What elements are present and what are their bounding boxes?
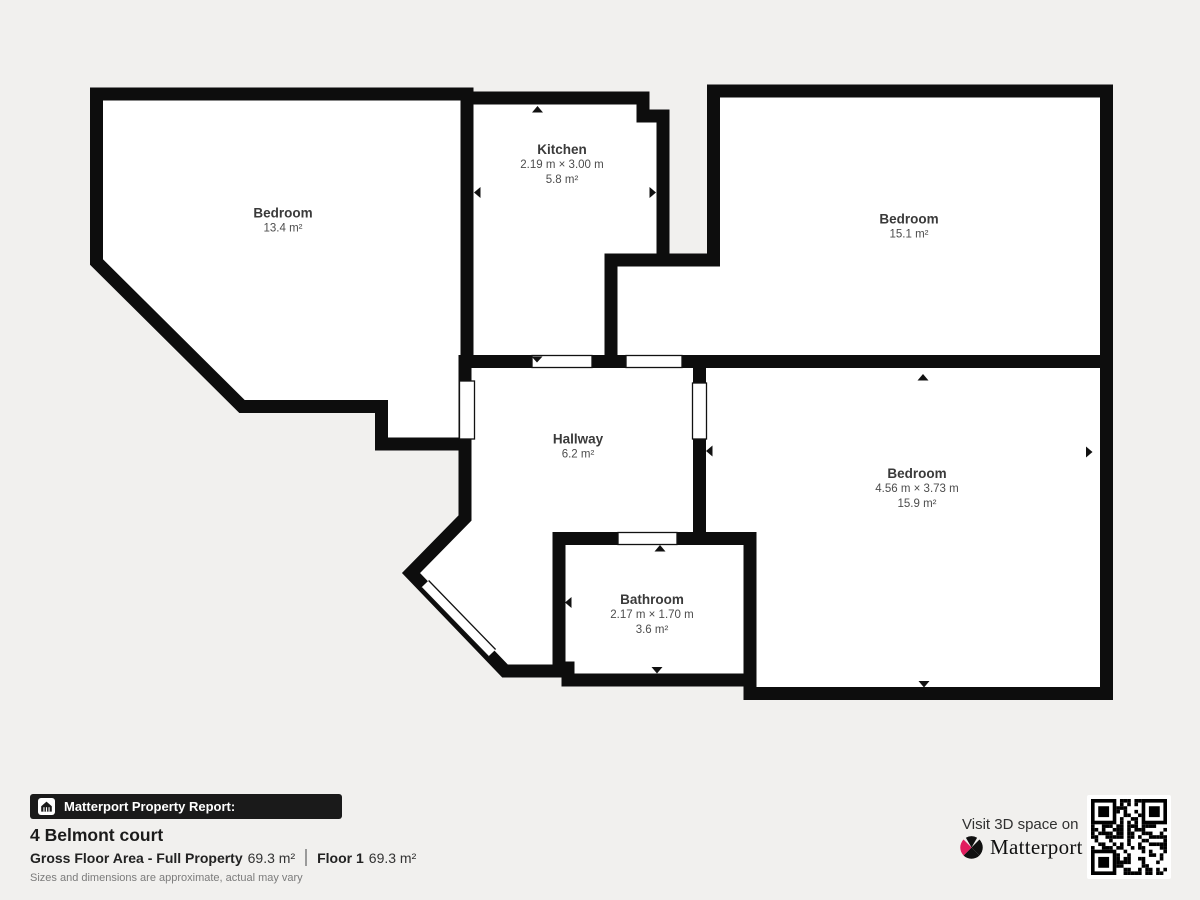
gross-floor-area-label: Gross Floor Area - Full Property — [30, 850, 243, 866]
door-opening-bedroom-top-right-hallway — [626, 356, 682, 368]
room-area: 6.2 m² — [553, 448, 603, 463]
qr-code — [1087, 795, 1171, 879]
room-label-kitchen: Kitchen 2.19 m × 3.00 m 5.8 m² — [520, 142, 603, 188]
floor-value: 69.3 m² — [369, 850, 416, 866]
visit-3d-text: Visit 3D space on — [962, 816, 1078, 833]
room-label-bedroom-left: Bedroom 13.4 m² — [253, 206, 312, 237]
room-label-bedroom-top-right: Bedroom 15.1 m² — [879, 212, 938, 243]
room-area: 3.6 m² — [610, 623, 693, 638]
room-name: Bedroom — [879, 212, 938, 228]
door-opening-hallway-bedroom-right — [693, 383, 707, 439]
matterport-wordmark: Matterport — [990, 835, 1083, 860]
matterport-logo-icon — [958, 834, 985, 861]
room-name: Hallway — [553, 432, 603, 448]
room-area: 5.8 m² — [520, 173, 603, 188]
room-area: 15.9 m² — [875, 497, 958, 512]
divider — [305, 849, 307, 866]
gross-floor-area-value: 69.3 m² — [248, 850, 295, 866]
report-badge-label: Matterport Property Report: — [64, 799, 235, 814]
floor-area-summary: Gross Floor Area - Full Property 69.3 m²… — [30, 849, 416, 866]
room-name: Bedroom — [253, 206, 312, 222]
room-label-hallway: Hallway 6.2 m² — [553, 432, 603, 463]
room-area: 13.4 m² — [253, 222, 312, 237]
room-shape-bedroom-top-right — [611, 91, 1107, 362]
matterport-brand: Matterport ’ — [958, 834, 1090, 861]
room-name: Bathroom — [610, 592, 693, 608]
room-area: 15.1 m² — [879, 228, 938, 243]
room-name: Kitchen — [520, 142, 603, 158]
room-dims: 4.56 m × 3.73 m — [875, 482, 958, 497]
matterport-house-icon — [38, 798, 55, 815]
room-label-bathroom: Bathroom 2.17 m × 1.70 m 3.6 m² — [610, 592, 693, 638]
floor-label: Floor 1 — [317, 850, 364, 866]
door-opening-bedroom-left-hallway — [460, 381, 475, 439]
qr-code-svg — [1087, 795, 1171, 879]
property-report-page: Bedroom 13.4 m² Kitchen 2.19 m × 3.00 m … — [0, 0, 1200, 900]
report-badge: Matterport Property Report: — [30, 794, 342, 819]
property-address: 4 Belmont court — [30, 825, 163, 846]
door-opening-bathroom — [618, 533, 677, 545]
disclaimer-text: Sizes and dimensions are approximate, ac… — [30, 872, 303, 884]
room-shape-bedroom-left — [97, 94, 468, 444]
room-name: Bedroom — [875, 466, 958, 482]
room-dims: 2.19 m × 3.00 m — [520, 158, 603, 173]
room-shape-bedroom-bottom-right — [700, 362, 1107, 694]
room-dims: 2.17 m × 1.70 m — [610, 608, 693, 623]
room-label-bedroom-bottom-right: Bedroom 4.56 m × 3.73 m 15.9 m² — [875, 466, 958, 512]
